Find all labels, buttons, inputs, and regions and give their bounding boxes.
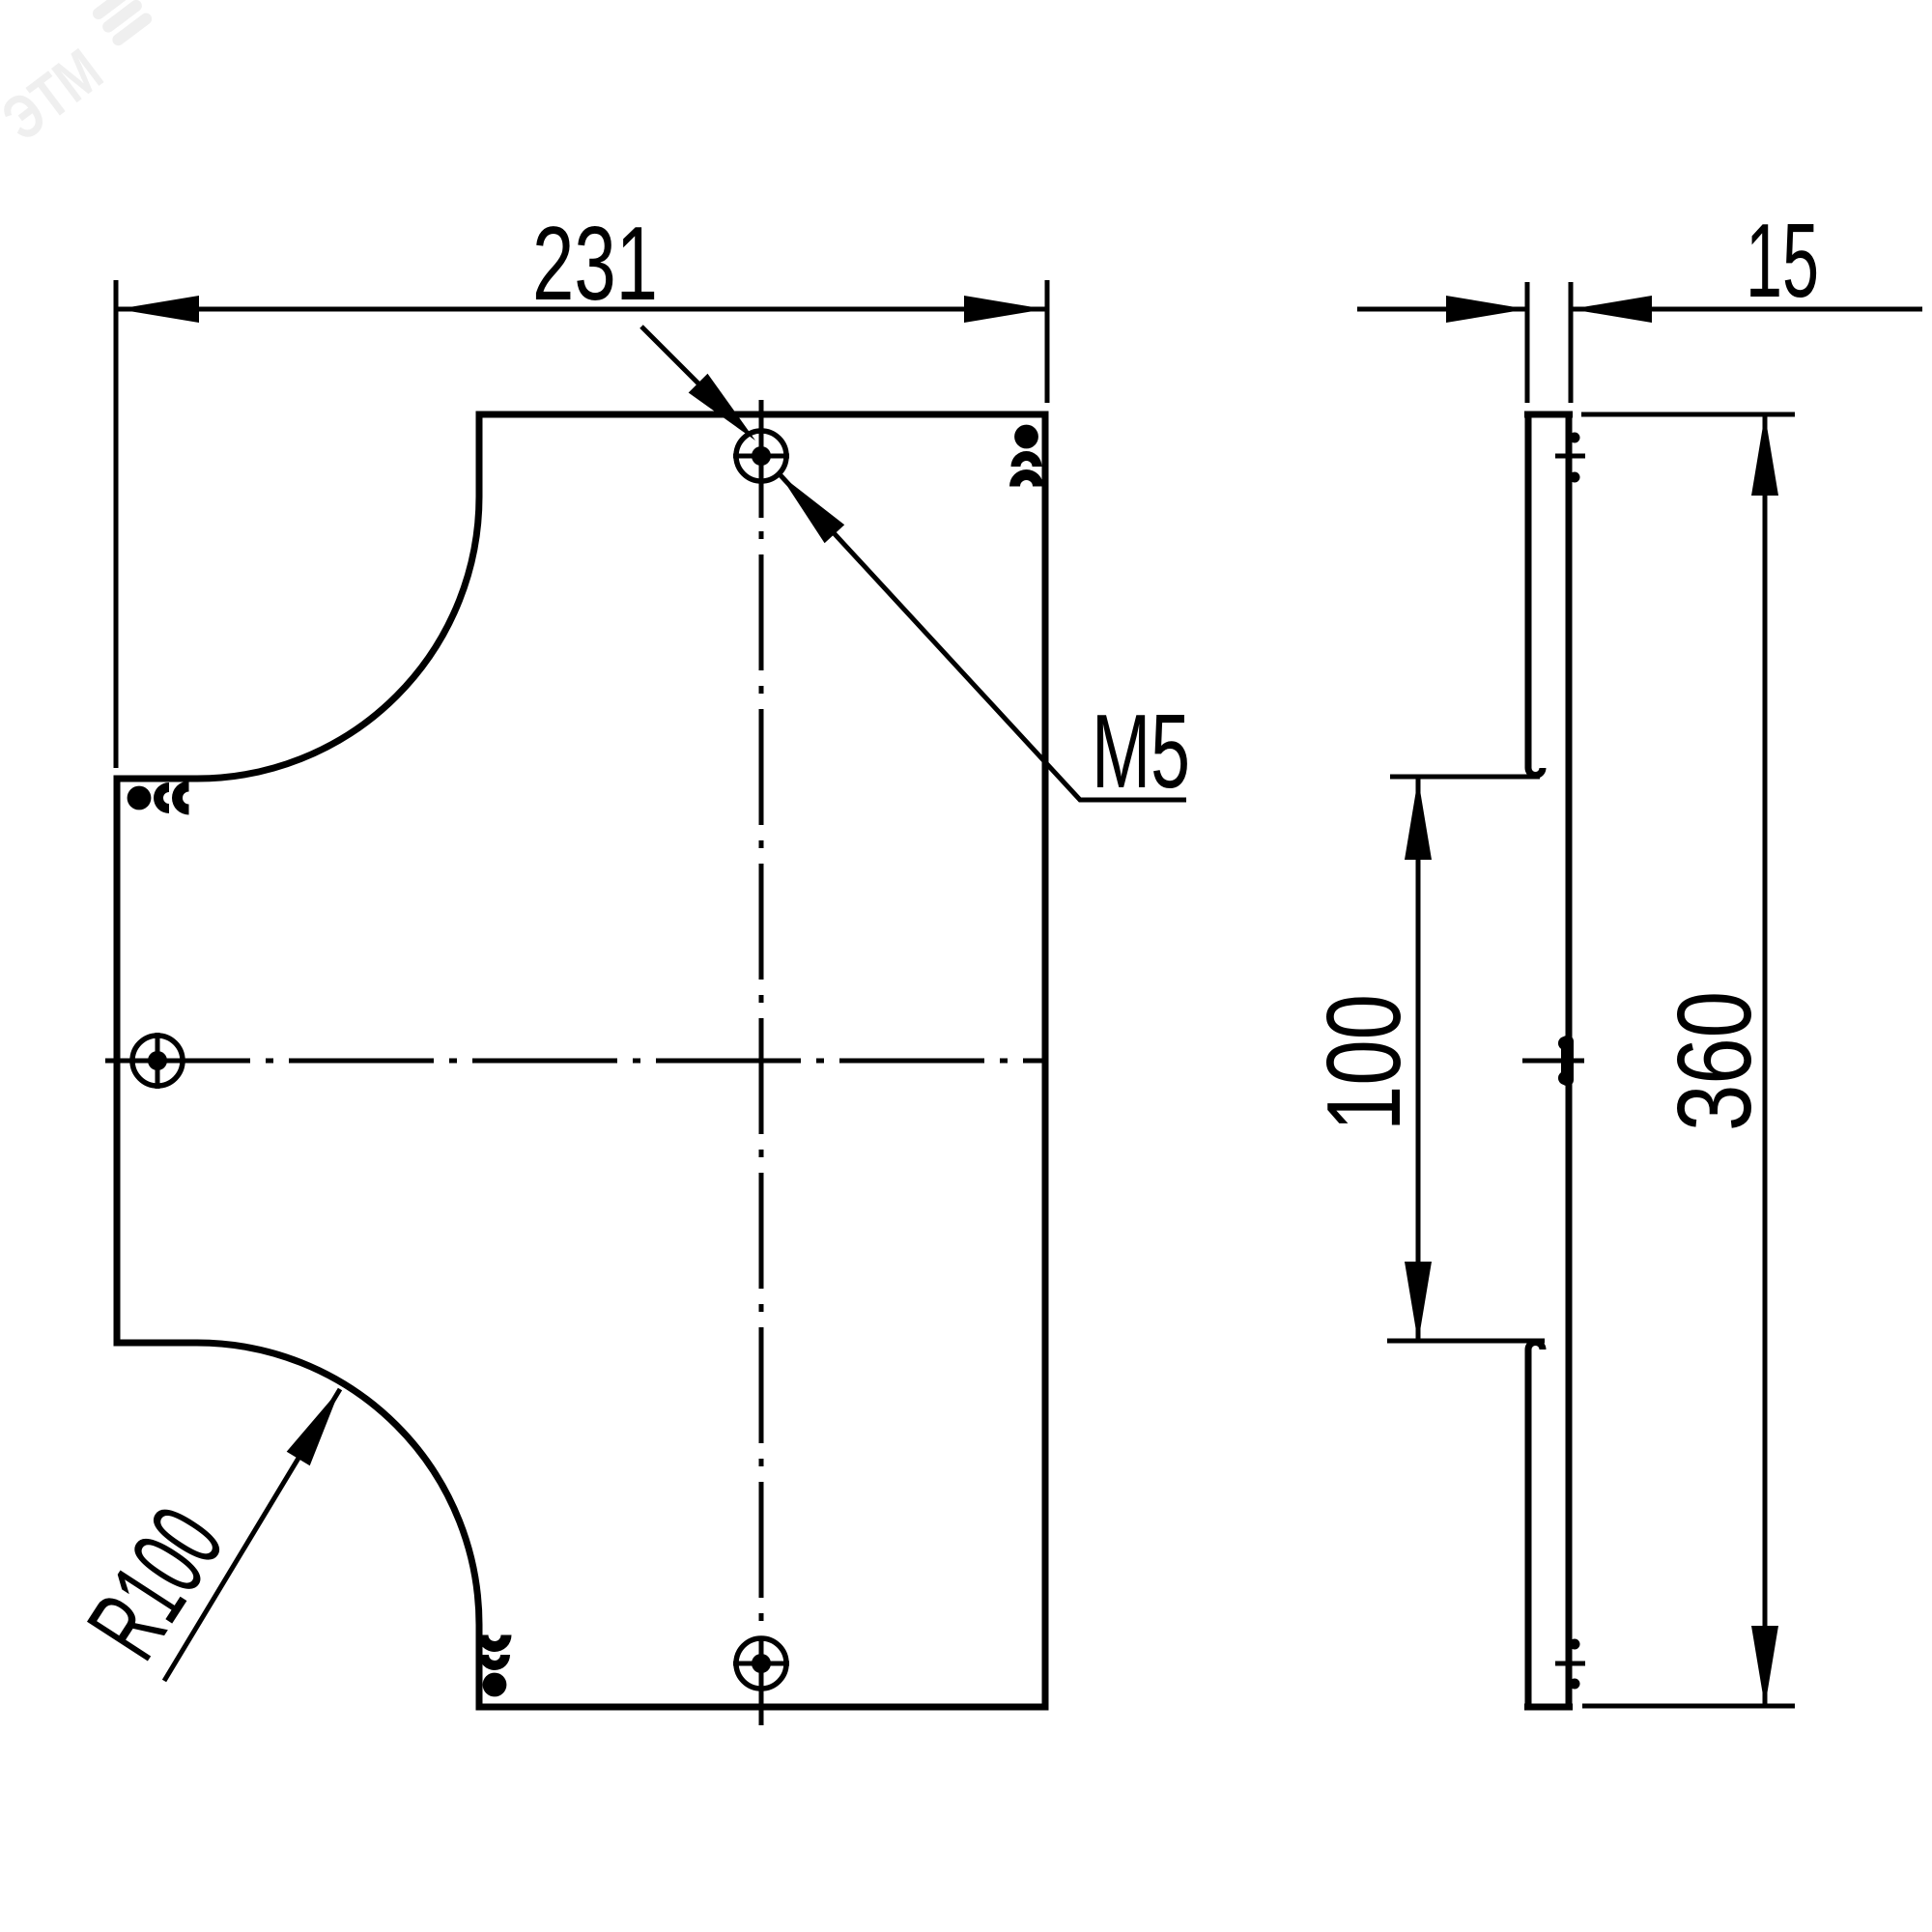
- svg-text:231: 231: [532, 205, 658, 323]
- svg-text:360: 360: [1656, 991, 1774, 1131]
- svg-text:15: 15: [1746, 202, 1819, 320]
- svg-text:100: 100: [1305, 994, 1423, 1131]
- svg-text:M5: M5: [1092, 693, 1190, 810]
